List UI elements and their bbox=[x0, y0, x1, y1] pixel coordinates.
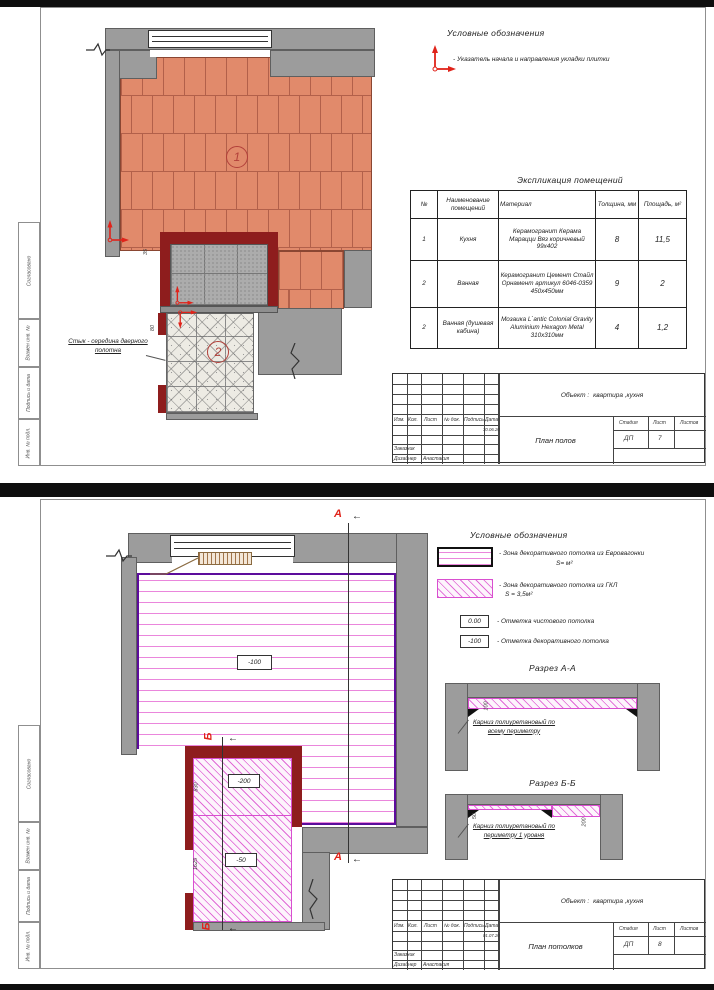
tb-col-sign: Подпись bbox=[464, 417, 484, 423]
tb-line bbox=[442, 880, 443, 970]
level-box-50: -50 bbox=[225, 853, 257, 867]
bathroom-wall-left-upper bbox=[185, 758, 193, 850]
tb-col-kol: Кол. bbox=[408, 923, 418, 929]
wall-break-icon bbox=[86, 41, 110, 59]
tb-line bbox=[613, 922, 614, 970]
legend-title: Условные обозначения bbox=[447, 28, 544, 38]
room-marker-bathroom: 2 bbox=[207, 341, 229, 363]
side-stamp-cell: Подпись и дата bbox=[18, 367, 40, 419]
side-stamp-label: Согласовано bbox=[26, 758, 32, 789]
cornice-leader-line bbox=[148, 552, 202, 580]
joint-note: Стык - середина дверного полотна bbox=[58, 338, 158, 355]
tb-line bbox=[393, 890, 498, 891]
cell-num: 1 bbox=[411, 219, 438, 261]
tb-col-doc: № док. bbox=[444, 417, 460, 423]
tb-customer: Заказчик bbox=[394, 446, 415, 452]
side-stamp-cell: Согласовано bbox=[18, 222, 40, 319]
cell-thickness: 9 bbox=[596, 261, 639, 308]
bathroom-wall-top bbox=[160, 232, 278, 244]
legend-title: Условные обозначения bbox=[470, 530, 567, 540]
window-frame-line bbox=[152, 41, 268, 42]
legend-mark-100: -100 bbox=[460, 635, 489, 648]
tb-object-value: квартира ,кухня bbox=[593, 392, 643, 399]
secBB-wall-right bbox=[600, 794, 623, 860]
tb-sheet-value: 8 bbox=[658, 941, 662, 948]
secAA-cornice-right bbox=[626, 709, 637, 717]
tile-row bbox=[121, 172, 371, 210]
legend-mark-0: 0.00 bbox=[460, 615, 489, 628]
tb-line bbox=[393, 900, 498, 901]
kitchen-tile-area-ext bbox=[278, 251, 344, 309]
sheet-ceiling-plan: Согласовано Взамен инв. № Подпись и дата… bbox=[0, 497, 714, 984]
legend-swatch-eurovagonka bbox=[437, 547, 493, 567]
tb-line bbox=[393, 414, 498, 415]
room-number: 1 bbox=[234, 150, 241, 164]
bathroom-wall-left-lower bbox=[185, 893, 193, 930]
secBB-dim-50: 50 bbox=[472, 813, 478, 819]
side-stamp-label: Подпись и дата bbox=[26, 374, 32, 412]
cell-name: Ванная (душевая кабина) bbox=[438, 308, 499, 348]
tb-line bbox=[393, 384, 498, 385]
secAA-cornice-left bbox=[468, 709, 479, 717]
side-stamp-label: Согласовано bbox=[26, 255, 32, 286]
title-block: Изм. Кол. Лист № док. Подпись Дата 30.06… bbox=[392, 373, 705, 463]
wall-right bbox=[396, 533, 428, 827]
tb-line bbox=[393, 920, 498, 921]
legend-swatch-gkl bbox=[437, 579, 493, 598]
tb-line bbox=[442, 374, 443, 464]
cell-thickness: 4 bbox=[596, 308, 639, 348]
cell-name: Кухня bbox=[438, 219, 499, 261]
side-stamp-cell: Инв. № подл. bbox=[18, 419, 40, 466]
tb-line bbox=[393, 435, 498, 436]
window-frame-line bbox=[152, 36, 268, 37]
explication-table: № Наименование помещений Материал Толщин… bbox=[410, 190, 687, 349]
tb-col-doc: № док. bbox=[444, 923, 460, 929]
tb-drawing-name: План полов bbox=[498, 416, 613, 464]
tb-line bbox=[421, 880, 422, 970]
page: { "side_stamp": ["Согласовано", "Взамен … bbox=[0, 0, 714, 990]
bathroom-wall-left-upper-seg bbox=[158, 313, 166, 335]
tb-col-list: Лист bbox=[424, 923, 437, 929]
bathroom-wall-bottom bbox=[193, 922, 325, 931]
tb-line bbox=[393, 941, 498, 942]
legend-item-gkl: - Зона декоративного потолка из ГКЛ bbox=[499, 582, 689, 590]
section-arrow-icon: ← bbox=[228, 924, 238, 934]
tile-row bbox=[279, 290, 343, 309]
tb-stage-value: ДП bbox=[624, 435, 633, 442]
tb-object-value: квартира ,кухня bbox=[593, 898, 643, 905]
wall-break-icon bbox=[106, 547, 132, 565]
secBB-dim-200: 200 bbox=[582, 817, 588, 826]
wall-break-icon bbox=[288, 343, 302, 379]
secAA-wall-left bbox=[445, 683, 468, 771]
tile-direction-arrow-icon bbox=[174, 285, 196, 307]
tb-line bbox=[393, 425, 498, 426]
cell-thickness: 8 bbox=[596, 219, 639, 261]
side-stamp-cell: Взамен инв. № bbox=[18, 822, 40, 870]
window-frame-line bbox=[174, 548, 291, 549]
tb-stage-value: ДП bbox=[624, 941, 633, 948]
wall-bottom-band bbox=[302, 827, 428, 854]
tb-line bbox=[393, 910, 498, 911]
tb-sheets-label: Листов bbox=[680, 926, 698, 932]
level-box-200: -200 bbox=[228, 774, 260, 788]
bathroom-wall-right bbox=[292, 758, 302, 827]
bathroom-wall-top bbox=[185, 746, 302, 758]
tb-stage-label: Стадия bbox=[619, 420, 638, 426]
section-arrow-icon: ← bbox=[228, 734, 238, 744]
side-stamp-label: Взамен инв. № bbox=[26, 325, 32, 360]
room-marker-kitchen: 1 bbox=[226, 146, 248, 168]
tb-col-izm: Изм. bbox=[394, 923, 405, 929]
title-block: Изм. Кол. Лист № док. Подпись Дата 01.07… bbox=[392, 879, 705, 969]
tb-object-label: Объект : bbox=[561, 898, 589, 905]
tb-col-sign: Подпись bbox=[464, 923, 484, 929]
secBB-cornice-step bbox=[541, 810, 552, 818]
legend-item: - Указатель начала и направления укладки… bbox=[453, 56, 693, 64]
section-BB-title: Разрез Б-Б bbox=[480, 778, 625, 788]
tb-designer: Дизайнер bbox=[394, 962, 416, 968]
tb-col-list: Лист bbox=[424, 417, 437, 423]
secAA-note: Карниз полиуретановый по всему периметру bbox=[468, 719, 560, 736]
bathroom-wall-right bbox=[268, 232, 278, 310]
tb-line bbox=[393, 394, 498, 395]
tb-designer-name: Анастасия bbox=[423, 962, 449, 968]
bathroom-wall-bottom bbox=[166, 413, 258, 420]
tile-direction-arrow-icon bbox=[176, 309, 198, 331]
dimension-80: 80 bbox=[150, 325, 156, 331]
window-sill bbox=[150, 50, 270, 57]
secBB-strip-level2 bbox=[552, 805, 600, 817]
section-arrow-icon: ← bbox=[352, 855, 362, 865]
tb-drawing-name: План потолков bbox=[498, 922, 613, 970]
wall-left bbox=[121, 557, 137, 755]
cell-material: Керамогранит Цемент Стайл Орнамент артик… bbox=[499, 261, 596, 308]
col-header: Материал bbox=[499, 191, 596, 219]
col-header: Наименование помещений bbox=[438, 191, 499, 219]
section-marker-B-bottom: Б bbox=[201, 923, 212, 931]
section-arrow-icon: ← bbox=[352, 512, 362, 522]
tb-line bbox=[613, 430, 706, 431]
curtain-cornice bbox=[198, 552, 252, 565]
window-frame-line bbox=[174, 542, 291, 543]
wall-right-upper bbox=[344, 250, 372, 308]
tb-line bbox=[613, 448, 706, 449]
secBB-slab bbox=[445, 794, 623, 805]
col-header: Площадь, м² bbox=[639, 191, 686, 219]
tb-col-date: Дата bbox=[485, 417, 498, 423]
secAA-wall-right bbox=[637, 683, 660, 771]
tb-line bbox=[421, 374, 422, 464]
secBB-note: Карниз полиуретановый по периметру 1 уро… bbox=[468, 823, 560, 840]
tb-sheets-label: Листов bbox=[680, 420, 698, 426]
tb-object-label: Объект : bbox=[561, 392, 589, 399]
cell-material: Керамогранит Керама Марацци Вяз коричнев… bbox=[499, 219, 596, 261]
side-stamp-cell: Инв. № подл. bbox=[18, 922, 40, 969]
tb-designer: Дизайнер bbox=[394, 456, 416, 462]
cell-area: 1,2 bbox=[639, 308, 686, 348]
section-line-A bbox=[348, 523, 349, 863]
tb-line bbox=[393, 404, 498, 405]
tb-line bbox=[613, 936, 706, 937]
explication-title: Экспликация помещений bbox=[455, 175, 685, 185]
section-AA-title: Разрез А-А bbox=[480, 663, 625, 673]
cell-material: Мозаика L`antic Colonial Gravity Alumini… bbox=[499, 308, 596, 348]
tb-col-izm: Изм. bbox=[394, 417, 405, 423]
tb-line bbox=[648, 416, 649, 448]
tb-object: Объект : квартира ,кухня bbox=[498, 880, 706, 922]
side-stamp-cell: Взамен инв. № bbox=[18, 319, 40, 367]
side-stamp-label: Подпись и дата bbox=[26, 877, 32, 915]
tb-object: Объект : квартира ,кухня bbox=[498, 374, 706, 416]
tb-stage-label: Стадия bbox=[619, 926, 638, 932]
tb-designer-name: Анастасия bbox=[423, 456, 449, 462]
side-stamp-cell: Подпись и дата bbox=[18, 870, 40, 922]
room-number: 2 bbox=[215, 345, 222, 359]
wall-top-right-block bbox=[270, 50, 375, 77]
gkl-level-divider bbox=[193, 815, 292, 816]
tb-customer: Заказчик bbox=[394, 952, 415, 958]
secAA-slab bbox=[445, 683, 660, 698]
bathroom-wall-left-lower-seg bbox=[158, 385, 166, 413]
tb-line bbox=[674, 416, 675, 448]
side-stamp-label: Взамен инв. № bbox=[26, 828, 32, 863]
secBB-strip-level1 bbox=[468, 805, 552, 810]
cell-area: 2 bbox=[639, 261, 686, 308]
side-stamp-cell: Согласовано bbox=[18, 725, 40, 822]
dimension-830: 830 bbox=[194, 782, 200, 791]
dimension-1625: 1625 bbox=[193, 858, 199, 870]
tb-sheet-label: Лист bbox=[653, 926, 666, 932]
secAA-dim-100: 100 bbox=[484, 701, 490, 710]
tb-col-date: Дата bbox=[485, 923, 498, 929]
legend-item-eurovagonka: - Зона декоративного потолка из Евроваго… bbox=[499, 550, 689, 558]
tb-line bbox=[393, 931, 498, 932]
legend-mark-0-text: - Отметка чистового потолка bbox=[497, 618, 594, 626]
tile-row bbox=[279, 252, 343, 290]
legend-item-gkl-area: S = 3,5м² bbox=[505, 591, 532, 599]
tile-direction-arrow-icon bbox=[106, 219, 132, 245]
tb-sheet-label: Лист bbox=[653, 420, 666, 426]
bathroom-wall-left bbox=[160, 232, 170, 310]
section-marker-B-top: Б bbox=[203, 733, 214, 741]
wall-break-icon bbox=[306, 879, 320, 919]
cell-area: 11,5 bbox=[639, 219, 686, 261]
section-line-B bbox=[222, 737, 223, 930]
col-header: Толщина, мм bbox=[596, 191, 639, 219]
legend-item-eurovagonka-area: S= м² bbox=[556, 560, 573, 568]
tb-sheet-value: 7 bbox=[658, 435, 662, 442]
level-box-main: -100 bbox=[237, 655, 272, 670]
tb-line bbox=[613, 416, 614, 464]
tb-line bbox=[674, 922, 675, 954]
tb-line bbox=[613, 954, 706, 955]
section-marker-A-top: А bbox=[334, 509, 342, 520]
cell-num: 2 bbox=[411, 308, 438, 348]
sheet-floor-plan: Согласовано Взамен инв. № Подпись и дата… bbox=[0, 7, 714, 483]
side-stamp-label: Инв. № подл. bbox=[26, 930, 32, 961]
side-stamp-label: Инв. № подл. bbox=[26, 427, 32, 458]
col-header: № bbox=[411, 191, 438, 219]
secAA-ceiling-strip bbox=[468, 698, 637, 709]
section-marker-A-bottom: А bbox=[334, 852, 342, 863]
tb-line bbox=[648, 922, 649, 954]
dimension-35: 35 bbox=[143, 249, 149, 255]
cell-num: 2 bbox=[411, 261, 438, 308]
cell-name: Ванная bbox=[438, 261, 499, 308]
legend-mark-100-text: - Отметка декоративного потолка bbox=[497, 638, 609, 646]
tile-row bbox=[121, 96, 371, 134]
window bbox=[148, 30, 272, 48]
tb-col-kol: Кол. bbox=[408, 417, 418, 423]
